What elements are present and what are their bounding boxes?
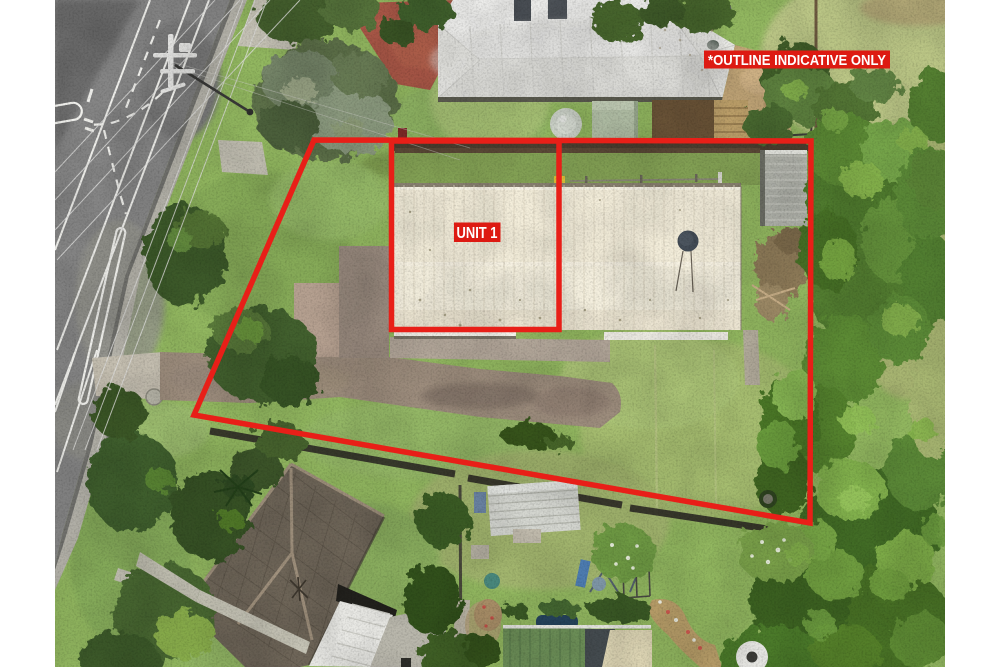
svg-text:*OUTLINE INDICATIVE ONLY: *OUTLINE INDICATIVE ONLY (708, 52, 886, 69)
svg-text:UNIT 1: UNIT 1 (457, 225, 498, 242)
